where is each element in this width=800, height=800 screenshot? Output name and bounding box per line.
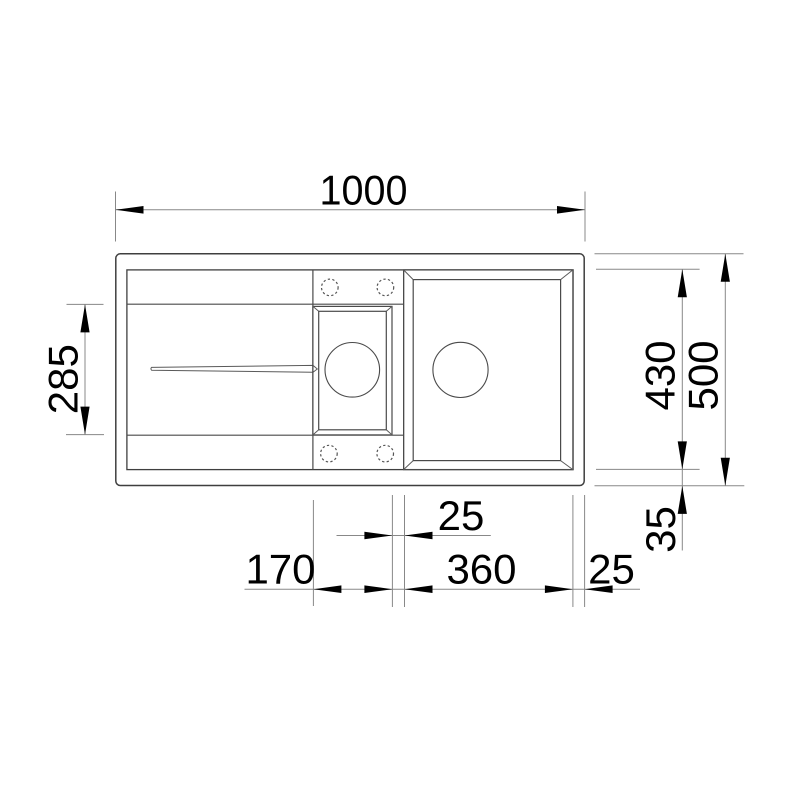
svg-text:170: 170: [245, 545, 315, 592]
svg-text:430: 430: [637, 340, 684, 410]
svg-text:1000: 1000: [320, 167, 408, 214]
svg-text:500: 500: [680, 340, 727, 410]
svg-text:285: 285: [39, 344, 86, 414]
svg-text:35: 35: [637, 506, 684, 553]
svg-text:360: 360: [446, 545, 516, 592]
svg-text:25: 25: [588, 545, 635, 592]
svg-text:25: 25: [438, 492, 485, 539]
